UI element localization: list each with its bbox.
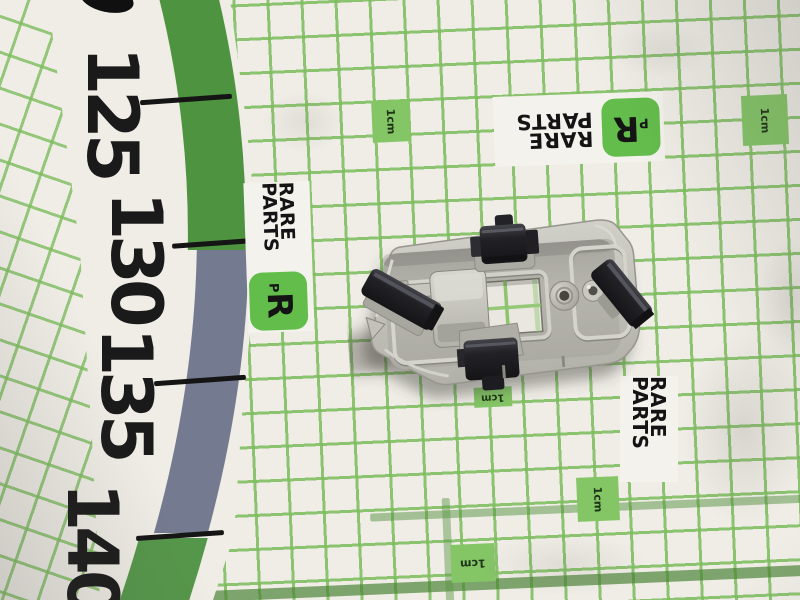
ruler-mark-130: 130 (101, 191, 171, 322)
ruler-mark-135: 135 (91, 327, 161, 458)
brand-mark-monogram: P R (613, 113, 650, 141)
photo-measuring-mat-scene: 1cm 1cm 1cm 1cm 1cm 125 130 135 140 (0, 0, 800, 600)
brand-mark-monogram: P R (264, 283, 292, 320)
brand-wordmark: RARE PARTS (246, 181, 309, 271)
metal-clip-top (469, 213, 541, 273)
plastic-trim-part (340, 199, 669, 417)
brand-word-line2: PARTS (515, 109, 593, 131)
brand-mark-square: P R (601, 97, 661, 157)
brand-logo-top: P R RARE PARTS (493, 91, 665, 167)
ruler-mark-140: 140 (57, 482, 127, 600)
brand-mark-letter: R (265, 292, 293, 319)
brand-mark-small-letter: P (639, 116, 649, 127)
brand-word-line2: PARTS (259, 182, 280, 271)
brand-logo-left: RARE PARTS P R (243, 181, 314, 333)
brand-mark-square: P R (249, 271, 309, 331)
brand-logo-row: P R RARE PARTS (493, 91, 665, 167)
brand-wordmark: RARE PARTS (515, 109, 593, 150)
brand-mark-letter: R (613, 113, 640, 141)
ruler-mark-125: 125 (77, 46, 147, 177)
